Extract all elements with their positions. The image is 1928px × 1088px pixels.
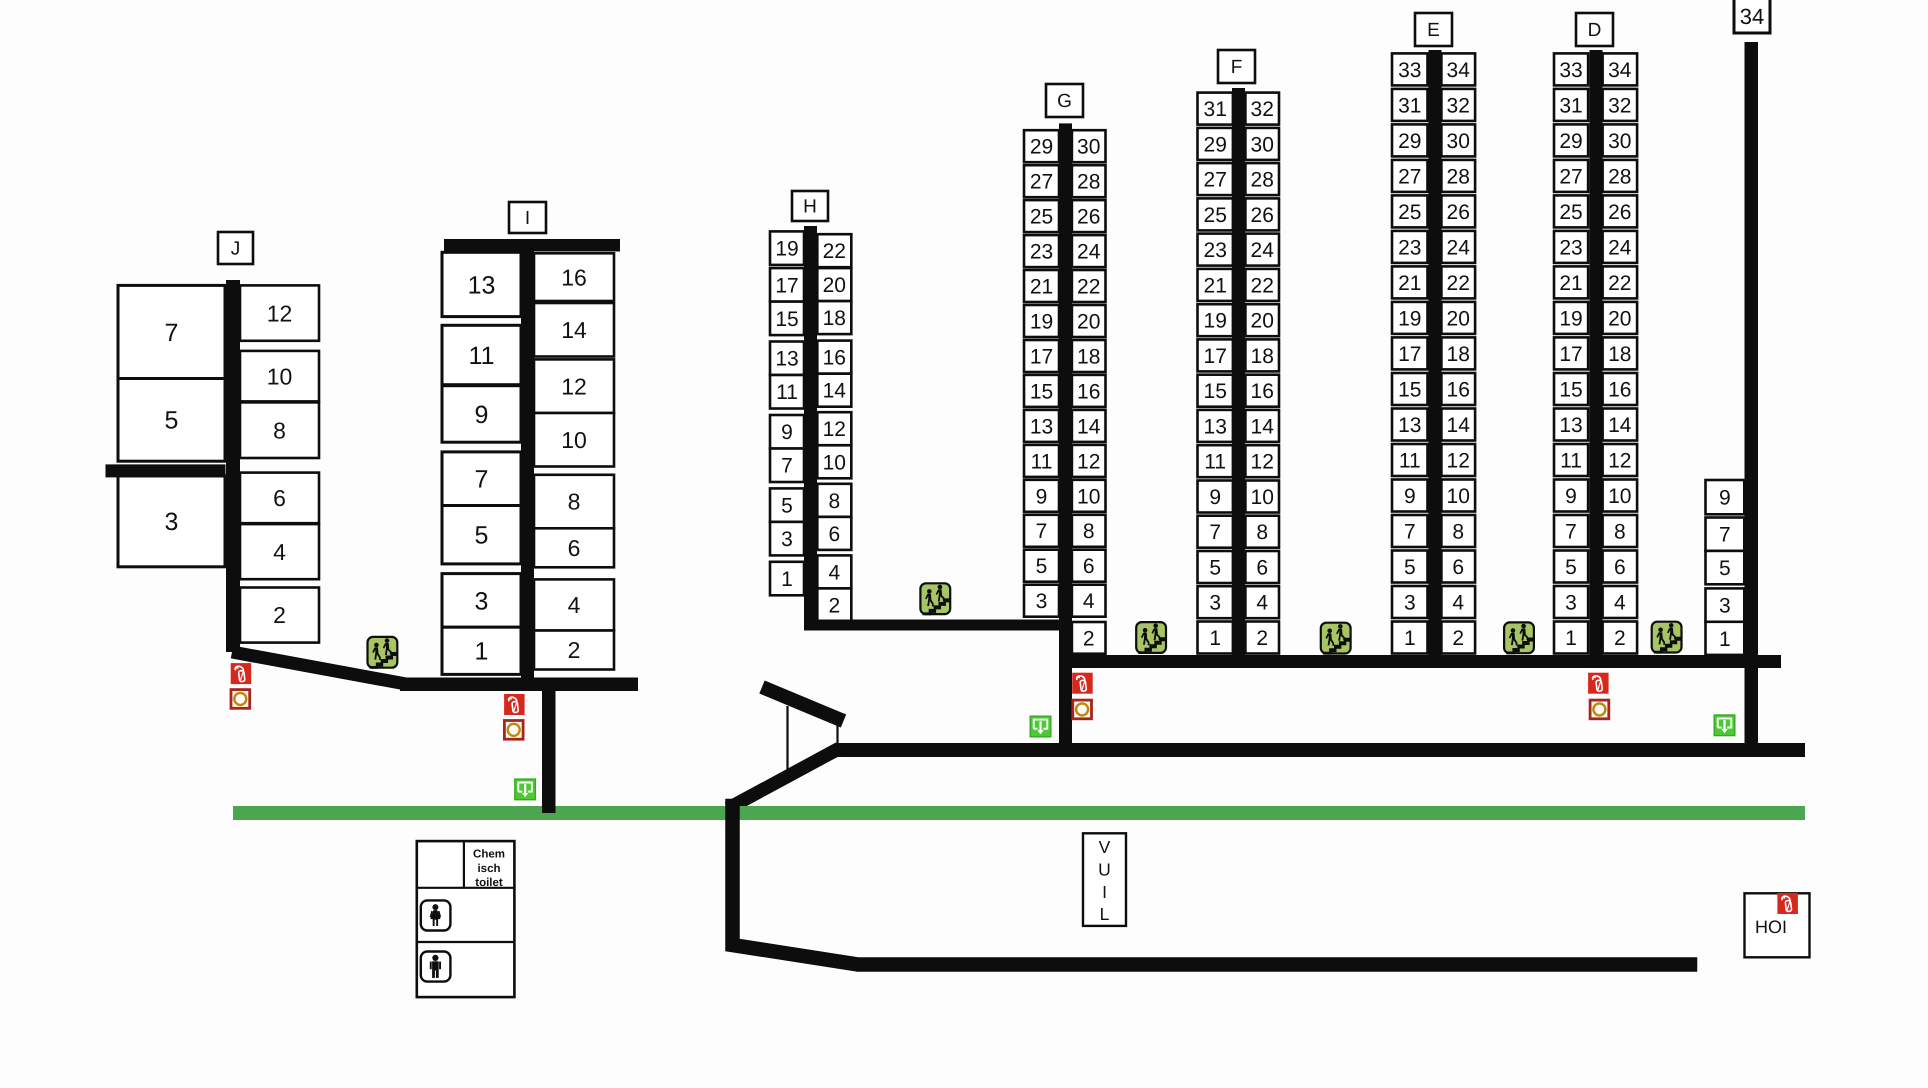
svg-text:21: 21 [1030,276,1053,299]
svg-text:11: 11 [1031,450,1053,473]
svg-text:22: 22 [1251,274,1274,297]
svg-text:24: 24 [1447,236,1471,259]
svg-text:5: 5 [1404,556,1416,579]
svg-text:9: 9 [1565,485,1577,508]
svg-text:E: E [1427,20,1440,41]
svg-text:4: 4 [828,561,840,584]
svg-text:18: 18 [1251,345,1274,368]
svg-text:11: 11 [776,381,798,404]
svg-text:14: 14 [561,317,587,343]
svg-text:1: 1 [1719,628,1731,651]
svg-text:27: 27 [1204,169,1227,192]
svg-text:17: 17 [775,274,798,297]
svg-text:16: 16 [1077,380,1100,403]
svg-text:8: 8 [828,490,840,513]
svg-text:30: 30 [1447,130,1470,153]
svg-text:J: J [231,239,241,260]
svg-text:21: 21 [1559,272,1582,295]
svg-text:32: 32 [1608,94,1631,117]
svg-text:16: 16 [561,264,587,290]
svg-text:10: 10 [1608,485,1631,508]
svg-text:25: 25 [1559,201,1582,224]
svg-text:5: 5 [1565,556,1577,579]
svg-text:28: 28 [1608,165,1631,188]
svg-text:18: 18 [1608,343,1631,366]
svg-text:9: 9 [1719,487,1731,510]
svg-text:11: 11 [469,342,495,370]
svg-text:toilet: toilet [475,877,503,889]
svg-text:6: 6 [1256,556,1268,579]
svg-text:31: 31 [1204,98,1227,121]
svg-text:2: 2 [1452,627,1464,650]
svg-text:24: 24 [1608,236,1632,259]
svg-text:28: 28 [1077,171,1100,194]
svg-text:7: 7 [1209,521,1221,544]
svg-text:26: 26 [1077,206,1100,229]
svg-text:5: 5 [165,407,179,435]
svg-text:25: 25 [1204,204,1227,227]
svg-text:12: 12 [267,300,293,326]
svg-text:18: 18 [823,307,846,330]
svg-text:14: 14 [1251,415,1275,438]
svg-text:7: 7 [781,455,793,478]
svg-text:4: 4 [1083,590,1095,613]
svg-text:3: 3 [1209,592,1221,615]
svg-text:21: 21 [1204,274,1227,297]
svg-text:3: 3 [1565,591,1577,614]
svg-text:I: I [1102,882,1107,902]
svg-text:25: 25 [1398,201,1421,224]
svg-text:30: 30 [1251,133,1274,156]
svg-text:isch: isch [477,863,500,875]
svg-text:20: 20 [823,274,846,297]
svg-text:13: 13 [1030,415,1053,438]
svg-text:6: 6 [828,523,840,546]
svg-text:7: 7 [1565,520,1577,543]
svg-text:4: 4 [1256,592,1268,615]
svg-text:8: 8 [1614,520,1626,543]
svg-text:5: 5 [1719,557,1731,580]
svg-text:20: 20 [1251,310,1274,333]
svg-text:16: 16 [823,347,846,370]
svg-text:20: 20 [1608,307,1631,330]
svg-text:7: 7 [165,319,179,347]
svg-text:3: 3 [1404,591,1416,614]
svg-text:10: 10 [823,451,846,474]
svg-text:13: 13 [1559,414,1582,437]
svg-text:12: 12 [1447,449,1470,472]
svg-text:29: 29 [1398,130,1421,153]
svg-text:3: 3 [165,508,179,536]
svg-text:12: 12 [1077,450,1100,473]
svg-text:3: 3 [1036,590,1048,613]
svg-text:8: 8 [1256,521,1268,544]
svg-text:12: 12 [1608,449,1631,472]
svg-text:30: 30 [1608,130,1631,153]
svg-text:6: 6 [568,535,581,561]
svg-text:11: 11 [1204,451,1226,474]
svg-text:3: 3 [781,528,793,551]
svg-text:8: 8 [1452,520,1464,543]
svg-text:27: 27 [1030,171,1053,194]
svg-text:2: 2 [568,637,581,663]
svg-text:26: 26 [1447,201,1470,224]
svg-text:6: 6 [1452,556,1464,579]
svg-text:8: 8 [273,417,286,443]
svg-text:34: 34 [1740,4,1764,29]
svg-text:1: 1 [1209,627,1221,650]
svg-text:D: D [1588,20,1602,41]
svg-text:29: 29 [1204,133,1227,156]
svg-text:5: 5 [475,522,489,550]
svg-text:12: 12 [1251,451,1274,474]
svg-text:18: 18 [1447,343,1470,366]
svg-text:23: 23 [1204,239,1227,262]
svg-text:30: 30 [1077,136,1100,159]
svg-text:4: 4 [1452,591,1464,614]
svg-text:9: 9 [475,401,489,429]
svg-text:12: 12 [561,373,587,399]
svg-text:2: 2 [273,602,286,628]
svg-text:26: 26 [1608,201,1631,224]
svg-text:H: H [803,197,817,218]
svg-text:15: 15 [775,308,798,331]
svg-text:4: 4 [1614,591,1626,614]
svg-text:13: 13 [1398,414,1421,437]
svg-text:19: 19 [1204,310,1227,333]
svg-text:22: 22 [823,240,846,263]
svg-text:17: 17 [1559,343,1582,366]
svg-text:15: 15 [1030,380,1053,403]
svg-text:G: G [1057,91,1072,112]
svg-text:L: L [1100,904,1110,924]
svg-text:34: 34 [1608,59,1632,82]
svg-text:19: 19 [775,238,798,261]
svg-text:9: 9 [781,421,793,444]
svg-text:2: 2 [1083,627,1095,650]
svg-text:22: 22 [1447,272,1470,295]
svg-text:10: 10 [267,363,293,389]
svg-text:19: 19 [1559,307,1582,330]
svg-text:10: 10 [1447,485,1470,508]
svg-text:9: 9 [1036,485,1048,508]
svg-text:8: 8 [568,489,581,515]
svg-text:29: 29 [1030,136,1053,159]
svg-text:11: 11 [1399,449,1421,472]
svg-text:1: 1 [475,638,489,666]
svg-text:27: 27 [1559,165,1582,188]
svg-text:16: 16 [1608,378,1631,401]
svg-text:I: I [525,208,530,229]
svg-text:1: 1 [1565,627,1577,650]
svg-text:18: 18 [1077,345,1100,368]
svg-text:27: 27 [1398,165,1421,188]
svg-text:33: 33 [1559,59,1582,82]
svg-text:13: 13 [1204,415,1227,438]
svg-text:16: 16 [1447,378,1470,401]
svg-text:14: 14 [1077,415,1101,438]
svg-text:2: 2 [1256,627,1268,650]
svg-text:24: 24 [1077,241,1101,264]
svg-text:2: 2 [828,594,840,617]
svg-text:1: 1 [781,568,793,591]
svg-text:23: 23 [1398,236,1421,259]
svg-text:23: 23 [1030,241,1053,264]
svg-text:23: 23 [1559,236,1582,259]
svg-text:5: 5 [1209,556,1221,579]
svg-text:3: 3 [475,587,489,615]
svg-text:8: 8 [1083,520,1095,543]
svg-text:F: F [1231,57,1243,78]
svg-text:16: 16 [1251,380,1274,403]
svg-text:26: 26 [1251,204,1274,227]
svg-text:28: 28 [1447,165,1470,188]
svg-text:U: U [1098,860,1111,880]
svg-text:1: 1 [1404,627,1416,650]
svg-text:15: 15 [1204,380,1227,403]
svg-text:5: 5 [1036,555,1048,578]
svg-text:13: 13 [775,348,798,371]
svg-text:12: 12 [823,418,846,441]
svg-text:6: 6 [1614,556,1626,579]
svg-text:20: 20 [1077,311,1100,334]
svg-text:22: 22 [1608,272,1631,295]
svg-text:14: 14 [823,380,847,403]
svg-text:5: 5 [781,495,793,518]
svg-text:14: 14 [1447,414,1471,437]
svg-text:31: 31 [1559,94,1582,117]
svg-text:32: 32 [1447,94,1470,117]
svg-text:Chem: Chem [473,849,505,861]
svg-text:29: 29 [1559,130,1582,153]
svg-text:21: 21 [1398,272,1421,295]
svg-text:7: 7 [1036,520,1048,543]
svg-text:34: 34 [1447,59,1471,82]
svg-text:11: 11 [1560,449,1582,472]
svg-text:19: 19 [1398,307,1421,330]
svg-text:13: 13 [468,271,496,299]
svg-text:10: 10 [561,427,587,453]
svg-text:20: 20 [1447,307,1470,330]
svg-text:15: 15 [1559,378,1582,401]
svg-text:33: 33 [1398,59,1421,82]
svg-text:10: 10 [1251,486,1274,509]
svg-text:25: 25 [1030,206,1053,229]
svg-text:15: 15 [1398,378,1421,401]
svg-text:V: V [1099,837,1111,857]
svg-text:7: 7 [1719,524,1731,547]
svg-text:HOI: HOI [1755,917,1787,937]
svg-text:22: 22 [1077,276,1100,299]
svg-text:31: 31 [1398,94,1421,117]
svg-text:4: 4 [273,539,286,565]
svg-text:4: 4 [568,592,581,618]
svg-text:24: 24 [1251,239,1275,262]
svg-text:3: 3 [1719,595,1731,618]
svg-text:9: 9 [1209,486,1221,509]
svg-text:7: 7 [1404,520,1416,543]
svg-text:6: 6 [273,485,286,511]
svg-text:14: 14 [1608,414,1632,437]
svg-text:2: 2 [1614,627,1626,650]
svg-text:9: 9 [1404,485,1416,508]
svg-text:7: 7 [475,466,489,494]
svg-text:19: 19 [1030,311,1053,334]
svg-text:6: 6 [1083,555,1095,578]
svg-text:17: 17 [1030,345,1053,368]
svg-text:10: 10 [1077,485,1100,508]
svg-text:28: 28 [1251,169,1274,192]
svg-text:17: 17 [1204,345,1227,368]
svg-text:17: 17 [1398,343,1421,366]
svg-text:32: 32 [1251,98,1274,121]
